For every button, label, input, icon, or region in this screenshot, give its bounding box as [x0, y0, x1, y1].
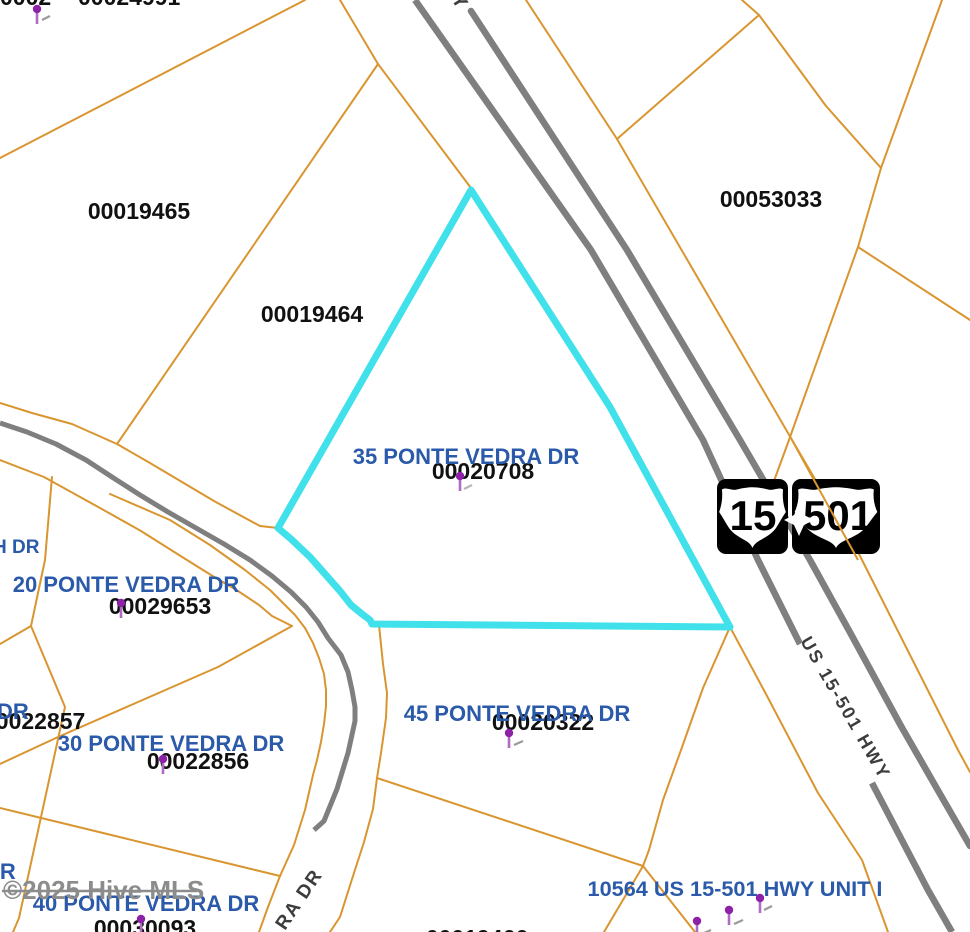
svg-text:DR: DR — [0, 699, 29, 724]
svg-text:10564 US 15-501 HWY UNIT I: 10564 US 15-501 HWY UNIT I — [588, 876, 883, 901]
svg-text:©2025 Hive MLS: ©2025 Hive MLS — [3, 875, 204, 905]
svg-text:00019466: 00019466 — [426, 925, 528, 932]
svg-text:00024991: 00024991 — [78, 0, 181, 10]
svg-text:30 PONTE VEDRA DR: 30 PONTE VEDRA DR — [58, 731, 285, 756]
svg-text:00019465: 00019465 — [88, 198, 191, 224]
svg-text:0002: 0002 — [0, 0, 51, 10]
svg-text:501: 501 — [803, 492, 873, 539]
svg-text:20 PONTE VEDRA DR: 20 PONTE VEDRA DR — [13, 572, 240, 597]
svg-text:15: 15 — [730, 492, 777, 539]
svg-text:00030093: 00030093 — [94, 915, 196, 932]
svg-text:00053033: 00053033 — [720, 186, 822, 212]
svg-text:45 PONTE VEDRA DR: 45 PONTE VEDRA DR — [404, 701, 631, 726]
svg-text:H DR: H DR — [0, 537, 40, 558]
svg-text:00019464: 00019464 — [261, 301, 364, 327]
svg-text:35 PONTE VEDRA DR: 35 PONTE VEDRA DR — [353, 444, 580, 469]
